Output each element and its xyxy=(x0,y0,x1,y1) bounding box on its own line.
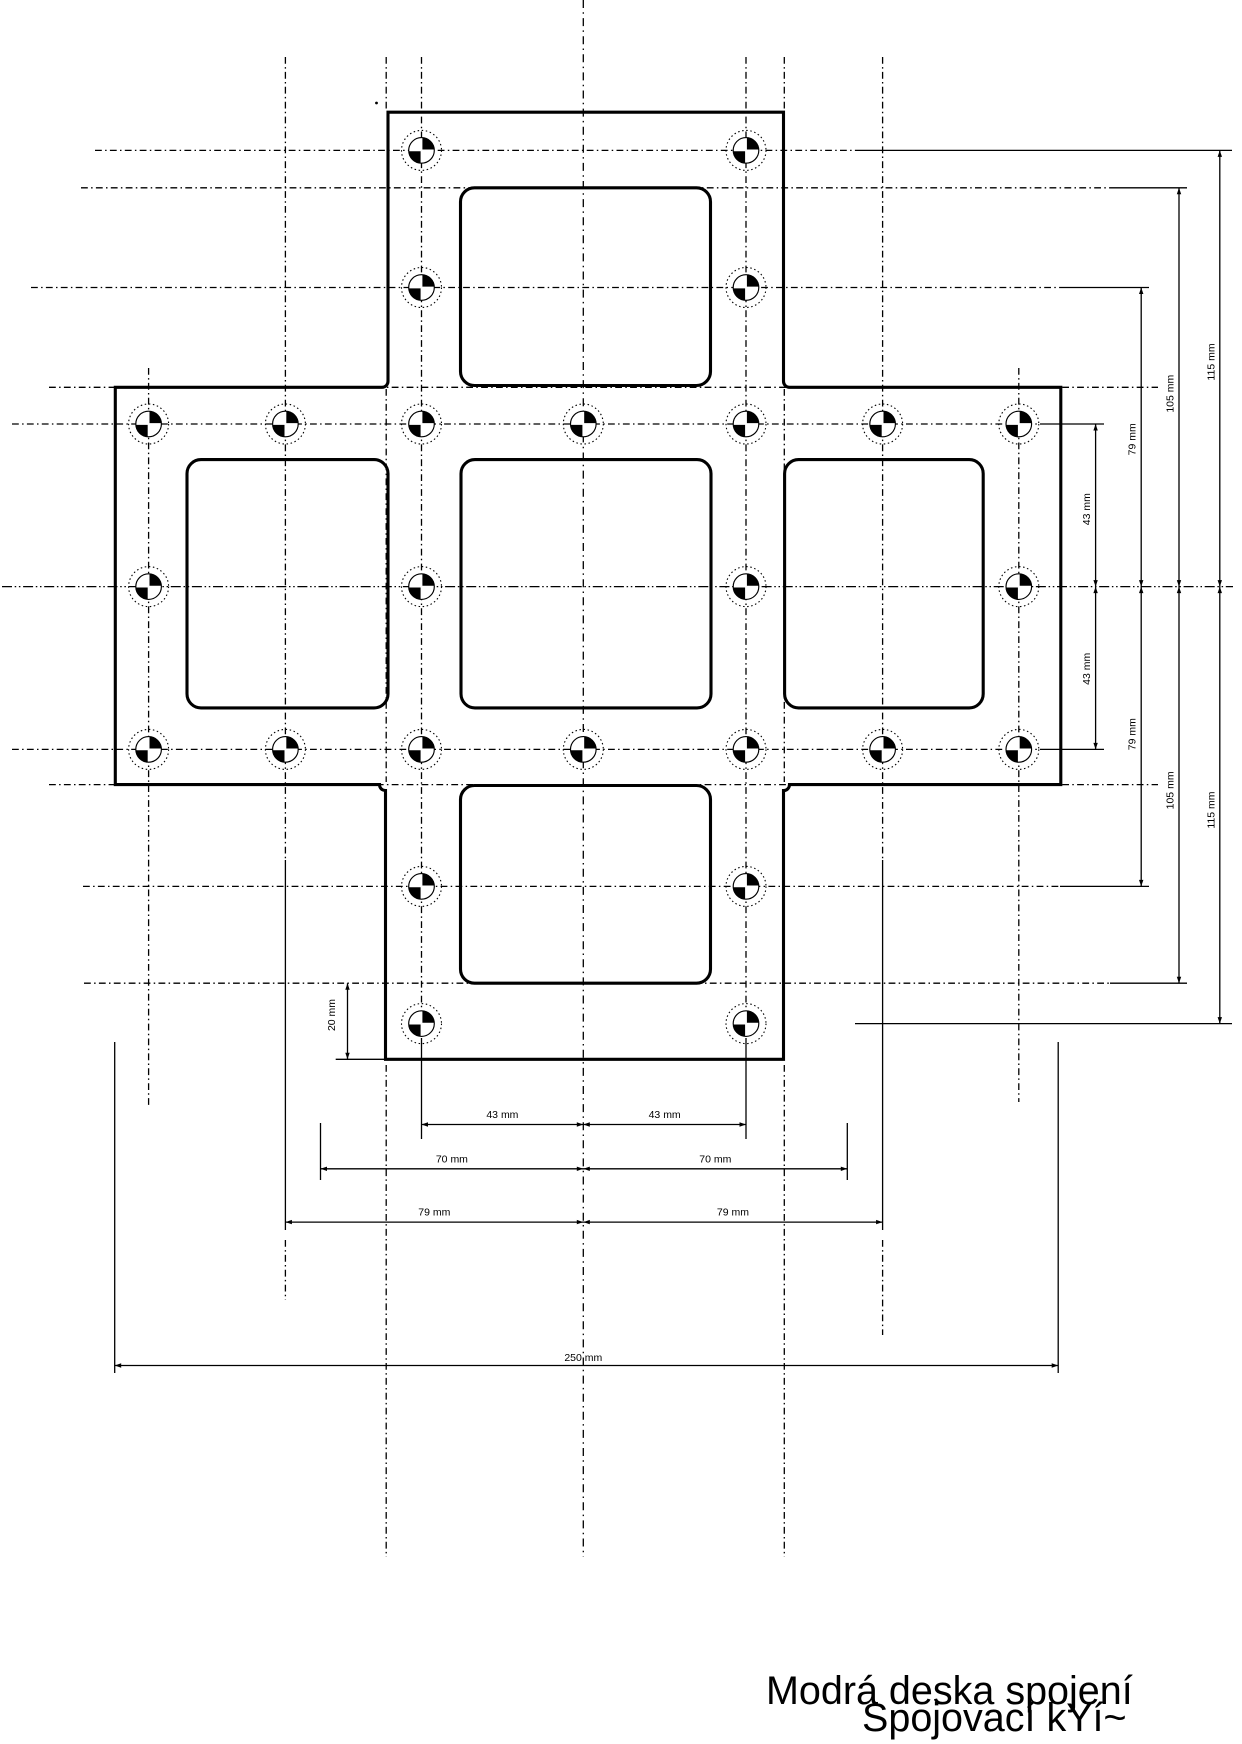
svg-text:250 mm: 250 mm xyxy=(564,1352,602,1364)
svg-text:79 mm: 79 mm xyxy=(418,1207,450,1219)
svg-text:20 mm: 20 mm xyxy=(326,999,338,1031)
svg-text:105 mm: 105 mm xyxy=(1165,771,1177,809)
svg-text:79 mm: 79 mm xyxy=(717,1207,749,1219)
svg-text:43 mm: 43 mm xyxy=(486,1109,518,1121)
svg-text:115 mm: 115 mm xyxy=(1205,343,1217,380)
svg-text:Spojovací kYí~: Spojovací kYí~ xyxy=(862,1696,1127,1740)
svg-text:79 mm: 79 mm xyxy=(1127,423,1139,455)
svg-text:79 mm: 79 mm xyxy=(1127,718,1139,750)
svg-text:43 mm: 43 mm xyxy=(649,1109,681,1121)
svg-text:70 mm: 70 mm xyxy=(436,1153,468,1165)
svg-text:70 mm: 70 mm xyxy=(699,1153,731,1165)
svg-text:115 mm: 115 mm xyxy=(1205,791,1217,828)
svg-text:43 mm: 43 mm xyxy=(1081,653,1093,685)
svg-text:105 mm: 105 mm xyxy=(1165,374,1177,412)
svg-text:43 mm: 43 mm xyxy=(1081,493,1093,525)
